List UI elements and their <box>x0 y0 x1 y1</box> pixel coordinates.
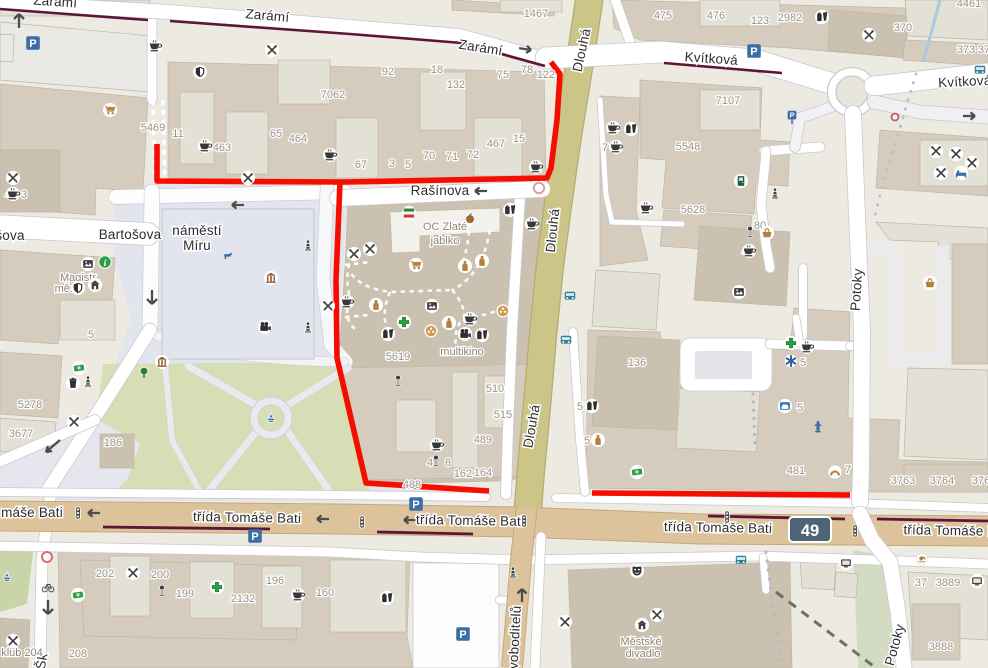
svg-text:Městské: Městské <box>621 636 662 648</box>
svg-text:75: 75 <box>497 69 509 81</box>
svg-text:3764: 3764 <box>930 475 954 487</box>
svg-text:5469: 5469 <box>141 122 165 134</box>
svg-text:11: 11 <box>172 128 183 140</box>
svg-text:373: 373 <box>957 44 975 56</box>
svg-text:5548: 5548 <box>676 141 700 153</box>
svg-text:5619: 5619 <box>386 351 410 363</box>
svg-text:třída Tomáše B: třída Tomáše B <box>903 522 988 539</box>
svg-text:3889: 3889 <box>936 577 960 589</box>
svg-text:49: 49 <box>801 522 819 540</box>
svg-text:202: 202 <box>96 568 114 580</box>
svg-text:multikino: multikino <box>440 346 483 358</box>
svg-text:třída Tomáše Bati: třída Tomáše Bati <box>664 519 772 536</box>
svg-text:Potoky: Potoky <box>848 268 866 311</box>
svg-text:divadlo: divadlo <box>626 648 661 660</box>
svg-text:třída Tomáše Bati: třída Tomáše Bati <box>193 509 301 526</box>
svg-text:122: 122 <box>537 69 555 81</box>
svg-text:Míru: Míru <box>183 238 211 253</box>
svg-text:67: 67 <box>355 159 367 171</box>
svg-text:510: 510 <box>486 383 504 395</box>
svg-text:8: 8 <box>445 457 451 469</box>
svg-text:5: 5 <box>800 357 806 369</box>
svg-text:Rašínova: Rašínova <box>411 183 470 198</box>
svg-text:123: 123 <box>751 15 769 27</box>
svg-text:7: 7 <box>602 142 608 154</box>
svg-text:Kvítková: Kvítková <box>938 73 988 91</box>
svg-text:7062: 7062 <box>321 89 345 101</box>
svg-text:5: 5 <box>797 402 803 414</box>
svg-text:OC Zlaté: OC Zlaté <box>423 221 467 233</box>
svg-text:4: 4 <box>427 457 433 469</box>
svg-text:klub 204: klub 204 <box>1 647 43 659</box>
svg-text:467: 467 <box>487 138 505 150</box>
svg-text:1467: 1467 <box>524 8 548 20</box>
svg-text:5628: 5628 <box>681 204 705 216</box>
svg-text:2982: 2982 <box>778 12 802 24</box>
svg-text:376: 376 <box>972 475 988 487</box>
svg-text:65: 65 <box>270 128 282 140</box>
svg-text:199: 199 <box>176 588 194 600</box>
svg-text:3888: 3888 <box>929 641 953 653</box>
svg-text:488: 488 <box>403 479 421 491</box>
svg-text:132: 132 <box>447 79 465 91</box>
svg-text:máše Bati: máše Bati <box>1 505 63 520</box>
svg-text:18: 18 <box>431 64 443 76</box>
svg-text:162: 162 <box>454 468 472 480</box>
svg-text:78: 78 <box>521 64 533 76</box>
svg-text:5: 5 <box>405 159 411 171</box>
svg-text:72: 72 <box>467 149 479 161</box>
svg-text:186: 186 <box>104 437 122 449</box>
svg-text:5278: 5278 <box>18 399 42 411</box>
svg-text:464: 464 <box>289 133 307 145</box>
svg-text:2132: 2132 <box>231 593 255 605</box>
svg-text:svoboditelů: svoboditelů <box>505 605 524 668</box>
svg-text:3: 3 <box>21 189 27 201</box>
svg-text:37: 37 <box>978 44 988 56</box>
svg-text:náměstí: náměstí <box>172 223 221 238</box>
svg-text:7: 7 <box>845 464 851 476</box>
svg-text:třída Tomáše Bati: třída Tomáše Bati <box>416 512 524 529</box>
svg-text:196: 196 <box>266 575 284 587</box>
svg-text:5: 5 <box>88 329 94 341</box>
svg-text:3763: 3763 <box>891 475 915 487</box>
svg-text:136: 136 <box>628 357 646 369</box>
svg-text:164: 164 <box>474 467 492 479</box>
svg-text:515: 515 <box>494 409 512 421</box>
svg-text:475: 475 <box>654 10 672 22</box>
svg-text:481: 481 <box>787 465 805 477</box>
svg-text:15: 15 <box>513 133 525 145</box>
svg-text:šova: šova <box>0 228 25 243</box>
svg-text:92: 92 <box>382 66 394 78</box>
svg-text:4461: 4461 <box>957 0 981 10</box>
svg-text:jablko: jablko <box>430 235 460 247</box>
svg-text:5: 5 <box>584 435 590 447</box>
svg-text:489: 489 <box>474 434 492 446</box>
svg-text:5: 5 <box>577 401 583 413</box>
svg-text:71: 71 <box>446 151 458 163</box>
svg-text:3: 3 <box>389 158 395 170</box>
svg-text:Bartošova: Bartošova <box>99 227 162 242</box>
svg-text:463: 463 <box>213 142 231 154</box>
svg-text:160: 160 <box>316 587 334 599</box>
svg-text:208: 208 <box>69 648 87 660</box>
svg-text:37: 37 <box>915 577 927 589</box>
svg-text:3677: 3677 <box>9 428 33 440</box>
svg-text:370: 370 <box>894 22 912 34</box>
svg-text:200: 200 <box>151 569 169 581</box>
svg-text:7107: 7107 <box>716 95 740 107</box>
svg-text:476: 476 <box>707 10 725 22</box>
svg-text:70: 70 <box>423 150 435 162</box>
